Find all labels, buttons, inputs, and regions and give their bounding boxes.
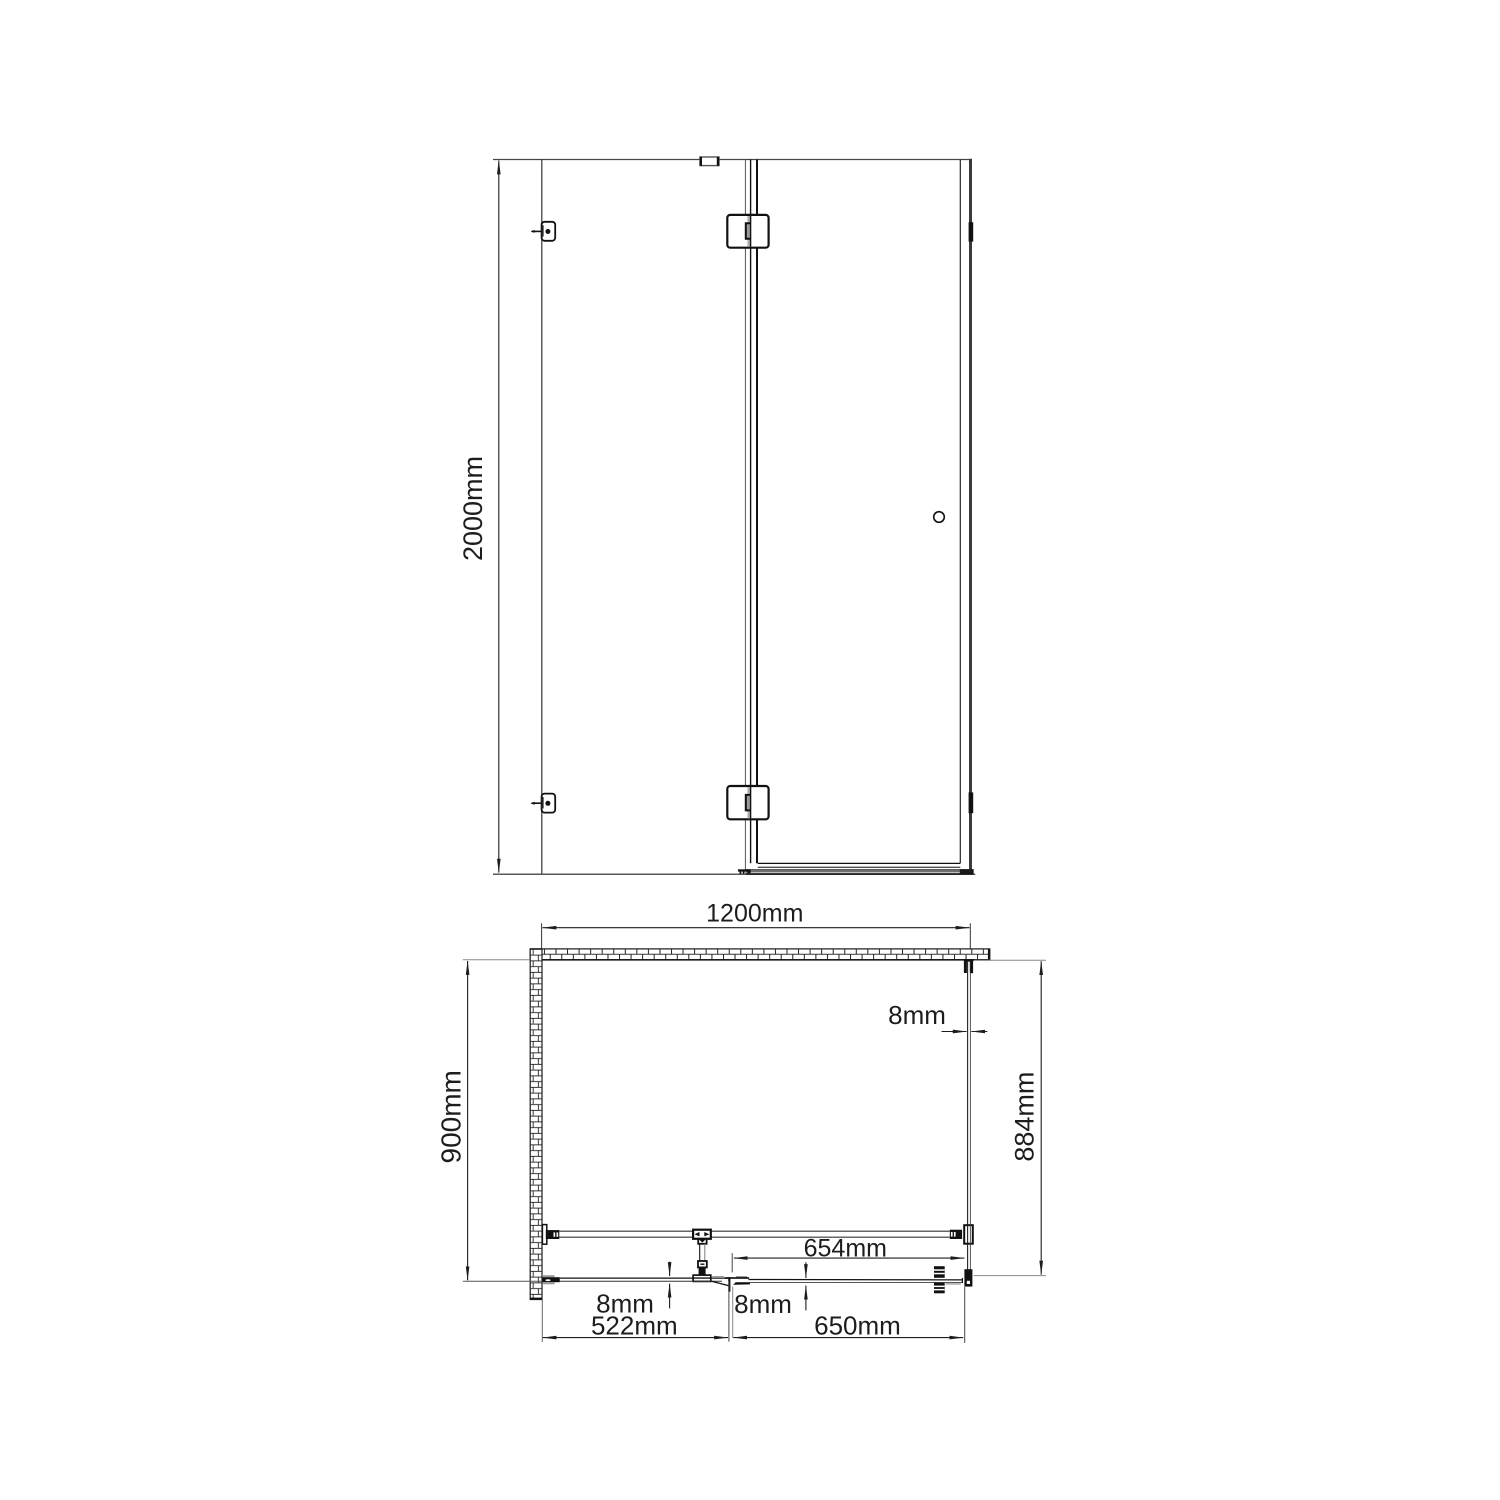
svg-text:522mm: 522mm [591, 1310, 678, 1340]
svg-text:2000mm: 2000mm [458, 456, 488, 561]
svg-text:8mm: 8mm [888, 1000, 946, 1030]
svg-text:884mm: 884mm [1010, 1072, 1040, 1162]
svg-text:8mm: 8mm [734, 1289, 792, 1319]
svg-text:1200mm: 1200mm [706, 899, 803, 927]
svg-text:900mm: 900mm [436, 1070, 467, 1163]
svg-text:650mm: 650mm [814, 1310, 901, 1340]
svg-text:654mm: 654mm [804, 1235, 887, 1263]
